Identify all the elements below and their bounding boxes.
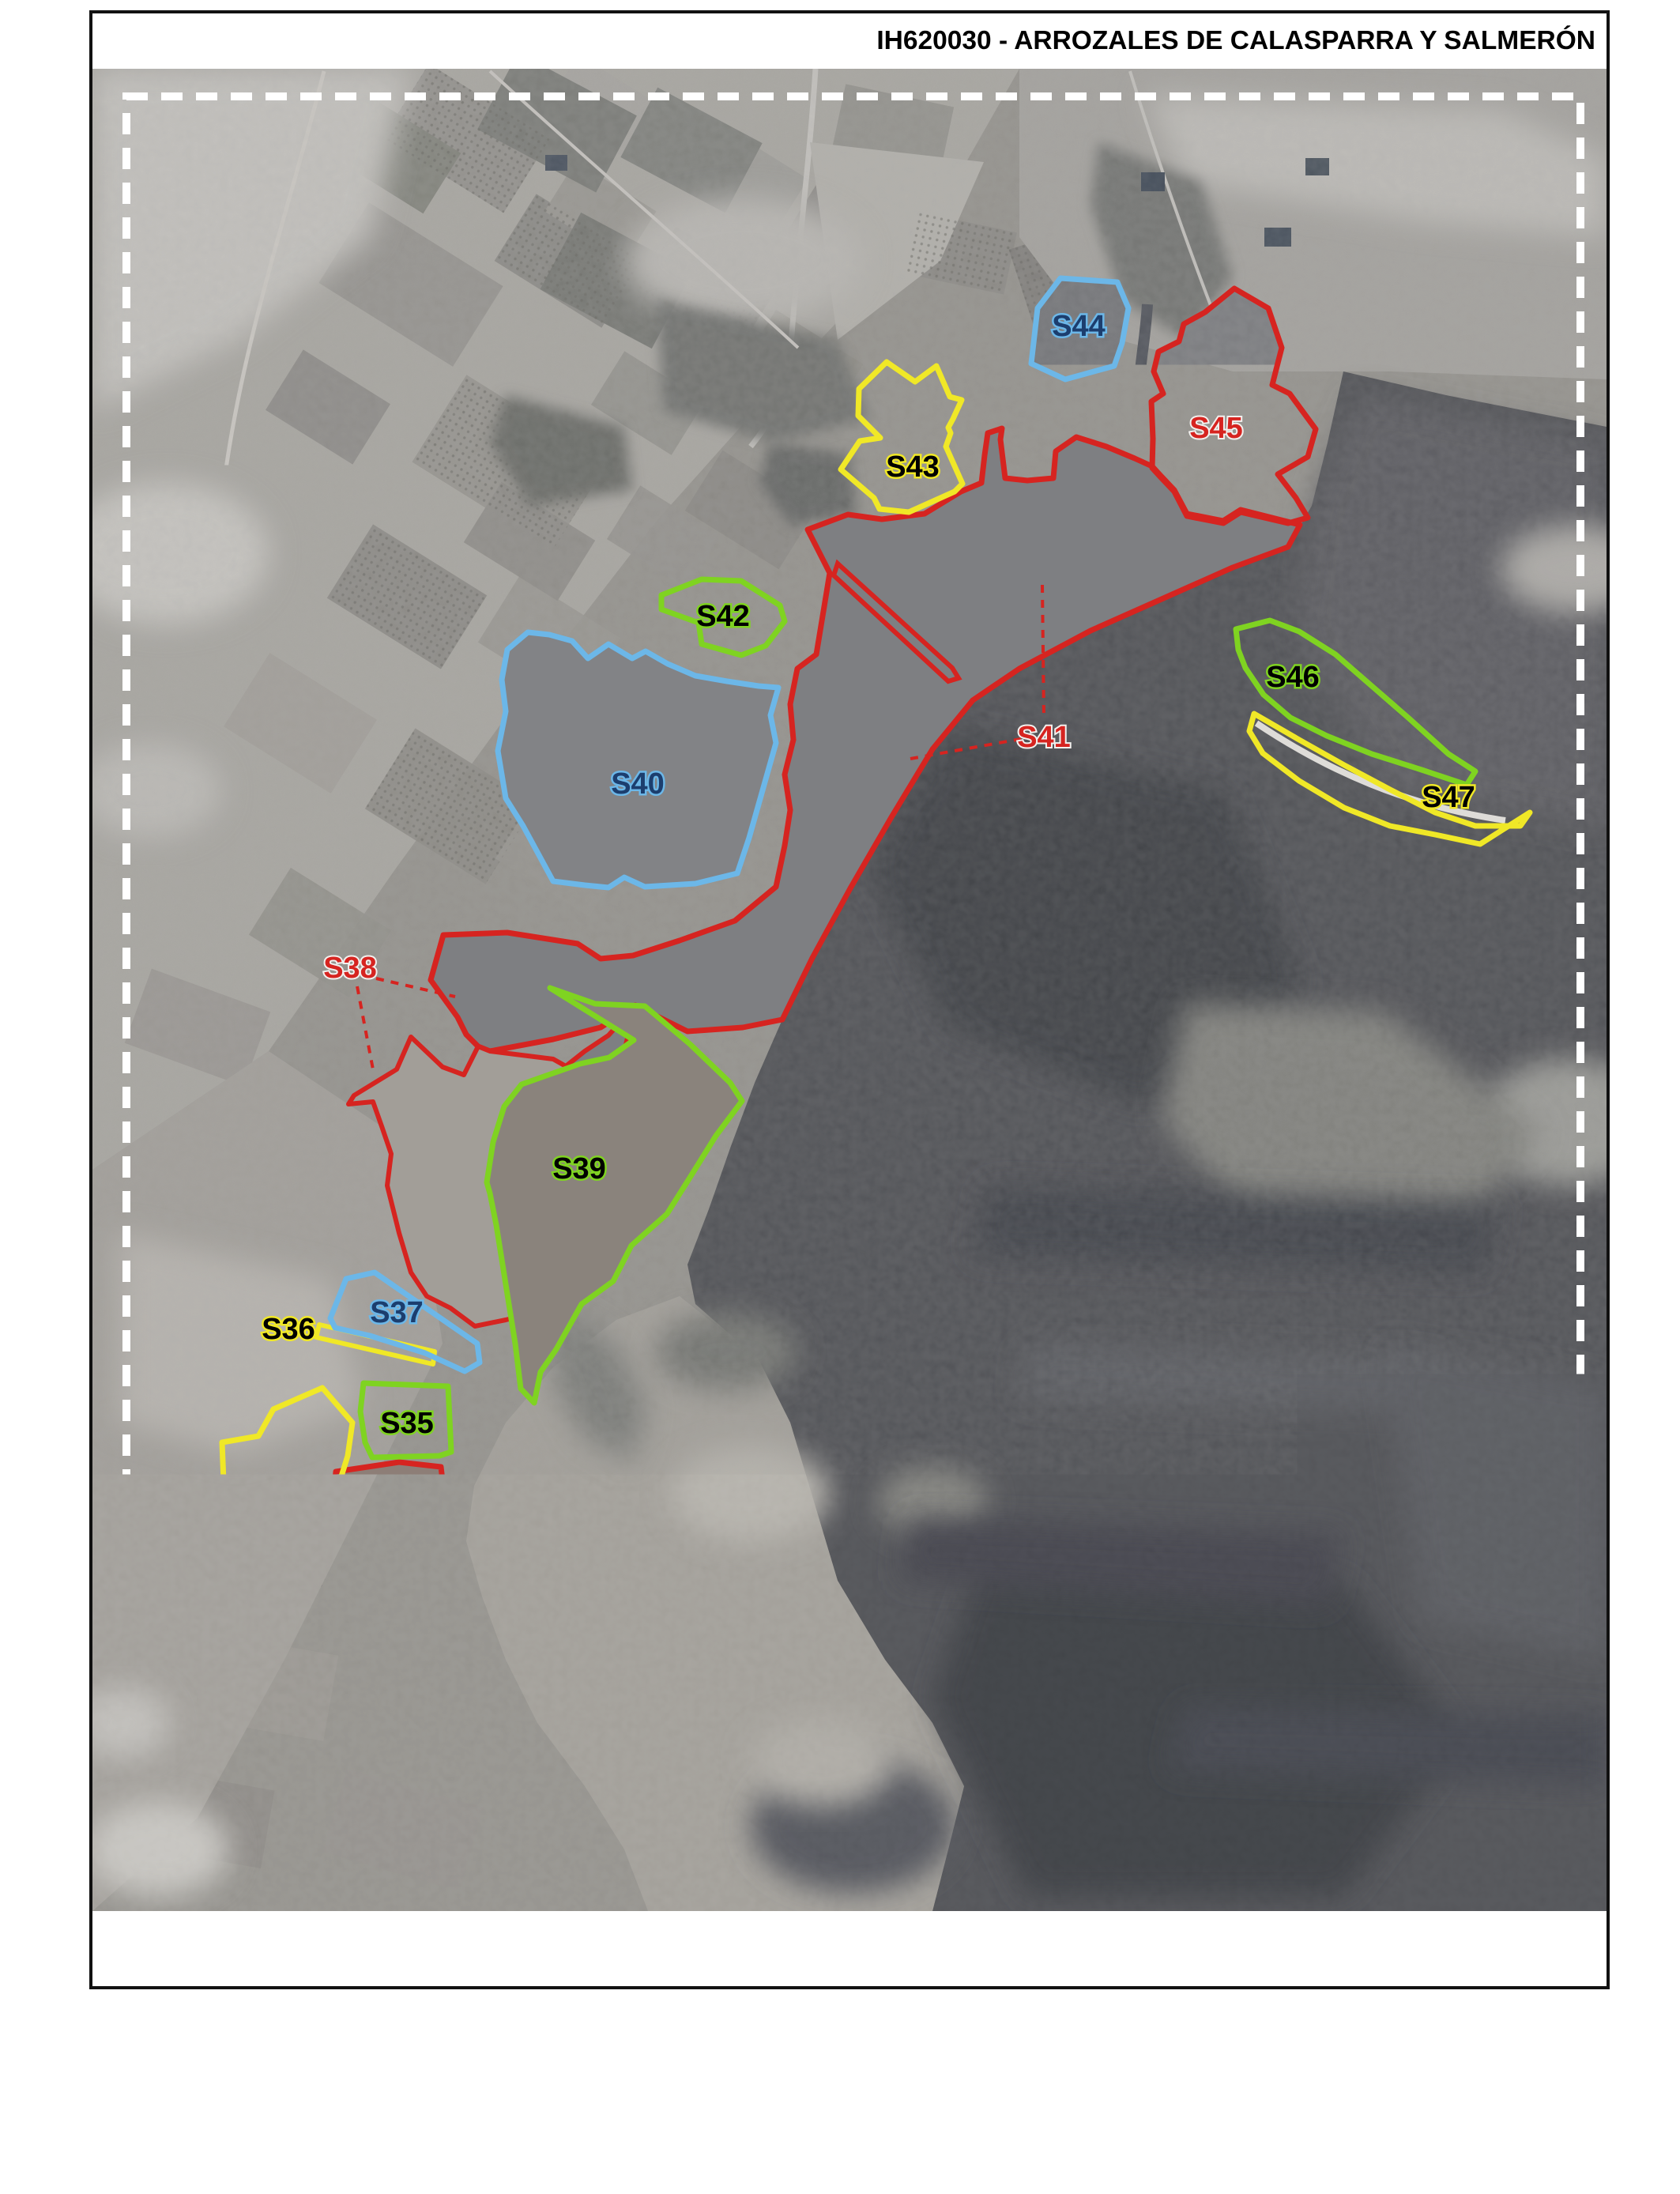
svg-text:S47: S47: [1422, 781, 1475, 814]
svg-text:S42: S42: [696, 600, 750, 633]
svg-text:S39: S39: [552, 1152, 606, 1186]
svg-text:S38: S38: [323, 952, 377, 985]
svg-text:300: 300: [202, 1931, 240, 1956]
svg-text:1.200 m: 1.200 m: [522, 1931, 605, 1956]
svg-text:S34: S34: [396, 1551, 450, 1584]
svg-text:S41: S41: [1017, 721, 1071, 754]
svg-text:0: 0: [104, 1931, 117, 1956]
svg-text:Ortofoto de base: PNOA 2013: Ortofoto de base: PNOA 2013: [1289, 1923, 1593, 1948]
svg-text:S37: S37: [370, 1296, 424, 1329]
svg-text:SECTOR D: SECTOR D: [1323, 1769, 1537, 1811]
svg-text:S36: S36: [262, 1313, 315, 1346]
svg-text:S40: S40: [611, 767, 665, 801]
svg-text:S35: S35: [380, 1407, 434, 1440]
svg-text:S43: S43: [886, 450, 940, 484]
svg-text:S46: S46: [1266, 661, 1320, 694]
svg-text:S45: S45: [1189, 412, 1243, 445]
svg-text:S33: S33: [601, 1623, 654, 1656]
svg-text:S32: S32: [263, 1584, 317, 1617]
svg-text:S44: S44: [1052, 310, 1106, 343]
svg-text:ETRS89 - UTM Huso 30: ETRS89 - UTM Huso 30: [1345, 1953, 1593, 1978]
svg-text:600: 600: [313, 1931, 351, 1956]
